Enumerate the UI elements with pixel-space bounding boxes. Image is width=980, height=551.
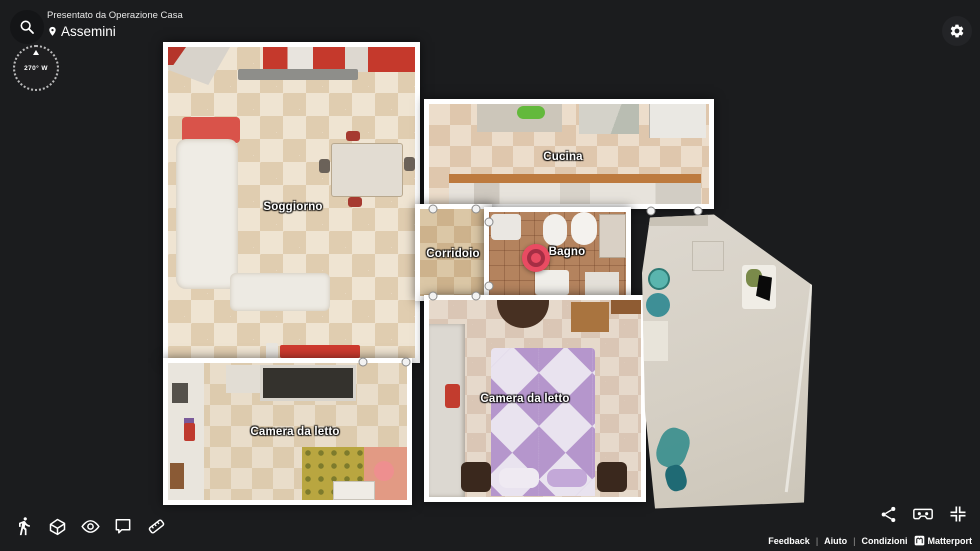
room-label-camera-2: Camera da letto: [480, 393, 569, 405]
kitchen-counter: [449, 183, 701, 204]
footer: Feedback | Aiuto | Condizioni Matterport: [768, 535, 972, 546]
compass-heading: 270° W: [24, 65, 48, 72]
comment-icon: [113, 516, 133, 536]
wall-node: [485, 282, 494, 291]
wall-node: [359, 358, 368, 367]
chair: [319, 159, 330, 173]
settings-gear-icon: [949, 23, 965, 39]
shelf-item: [172, 383, 188, 403]
room-soggiorno[interactable]: Soggiorno: [163, 42, 420, 363]
matterport-brand-label: Matterport: [928, 536, 973, 546]
measure-icon: [146, 516, 167, 537]
wall-node: [694, 207, 703, 216]
wall-node: [429, 292, 438, 301]
location-row: Assemini: [47, 24, 116, 39]
fullscreen-icon: [948, 504, 968, 524]
bidet: [543, 214, 567, 246]
room-camera-da-letto-1[interactable]: Camera da letto: [163, 358, 412, 505]
chair: [348, 197, 362, 207]
bench: [266, 343, 278, 359]
room-corridoio[interactable]: Corridoio: [415, 204, 492, 301]
share-button[interactable]: [876, 502, 900, 526]
walk-icon: [14, 516, 34, 536]
pillow: [374, 461, 394, 481]
kitchen-item: [517, 106, 545, 119]
wall-node: [429, 205, 438, 214]
room-label-corridoio: Corridoio: [426, 248, 480, 260]
washing-machine: [585, 272, 619, 296]
compass[interactable]: 270° W: [13, 45, 59, 91]
terrace-shelf: [642, 321, 668, 361]
wall-node: [472, 205, 481, 214]
footer-link-feedback[interactable]: Feedback: [768, 536, 810, 546]
matterport-logo-icon: [914, 535, 925, 546]
desk: [260, 365, 356, 401]
room-label-camera-1: Camera da letto: [250, 426, 339, 438]
footer-link-aiuto[interactable]: Aiuto: [824, 536, 847, 546]
walk-mode-button[interactable]: [12, 514, 36, 538]
vr-button[interactable]: [911, 502, 935, 526]
bedside-table: [333, 481, 375, 500]
search-button[interactable]: [10, 10, 44, 44]
armchair: [497, 300, 549, 328]
chaise: [230, 273, 330, 311]
wall-node: [647, 207, 656, 216]
marker-ring: [527, 249, 545, 267]
dollhouse-mode-button[interactable]: [45, 514, 69, 538]
chair: [346, 131, 360, 141]
dining-table: [331, 143, 403, 197]
share-toolbar: [876, 502, 970, 526]
terrace-object: [646, 293, 670, 317]
wall-node: [485, 218, 494, 227]
fullscreen-button[interactable]: [946, 502, 970, 526]
location-pin-icon: [47, 25, 58, 38]
pillow: [547, 469, 587, 487]
room-label-bagno: Bagno: [549, 246, 586, 258]
floor-drain: [692, 241, 724, 271]
shower: [599, 214, 626, 258]
terrace-edge: [785, 244, 818, 493]
nightstand: [597, 462, 627, 492]
matterport-brand[interactable]: Matterport: [914, 535, 973, 546]
toilet-tank: [535, 270, 569, 295]
kitchen-counter-edge: [449, 174, 701, 183]
chair: [184, 423, 195, 441]
compass-needle-icon: [33, 50, 39, 55]
wall-node: [472, 292, 481, 301]
pillow: [499, 468, 539, 488]
search-icon: [19, 19, 35, 35]
footer-separator: |: [853, 536, 855, 546]
dollhouse-icon: [47, 516, 68, 537]
chair: [404, 157, 415, 171]
wall-node: [402, 358, 411, 367]
footer-link-condizioni[interactable]: Condizioni: [862, 536, 908, 546]
settings-button[interactable]: [942, 16, 972, 46]
location-name: Assemini: [61, 24, 116, 39]
room-label-cucina: Cucina: [543, 151, 583, 163]
terrace-area[interactable]: [640, 213, 840, 513]
terrace-object: [648, 268, 670, 290]
chair: [445, 384, 460, 408]
sink: [491, 214, 521, 240]
highlights-eye-icon: [80, 516, 101, 537]
fridge: [649, 104, 706, 138]
comments-button[interactable]: [111, 514, 135, 538]
kitchen-appliance: [579, 104, 639, 134]
toilet: [571, 212, 597, 245]
desk: [571, 302, 609, 332]
footer-separator: |: [816, 536, 818, 546]
vr-headset-icon: [912, 503, 934, 525]
terrace-object: [663, 463, 689, 493]
sofa: [176, 139, 238, 289]
mode-toolbar: [12, 514, 168, 538]
share-icon: [879, 505, 898, 524]
room-cucina[interactable]: Cucina: [424, 99, 714, 209]
nightstand: [461, 462, 491, 492]
current-position-marker[interactable]: [522, 244, 550, 272]
highlights-button[interactable]: [78, 514, 102, 538]
desk: [226, 365, 260, 393]
room-label-soggiorno: Soggiorno: [263, 201, 322, 213]
matterport-viewer: Soggiorno Cucina Corridoio Bagno: [0, 0, 980, 551]
room-bagno[interactable]: Bagno: [484, 207, 631, 301]
shelf-item: [170, 463, 184, 489]
presented-by-text: Presentato da Operazione Casa: [47, 10, 183, 21]
shelf: [611, 300, 641, 314]
measure-button[interactable]: [144, 514, 168, 538]
wardrobe: [429, 324, 465, 497]
room-camera-da-letto-2[interactable]: Camera da letto: [424, 295, 646, 502]
sideboard: [238, 69, 358, 80]
red-bench: [280, 345, 360, 358]
